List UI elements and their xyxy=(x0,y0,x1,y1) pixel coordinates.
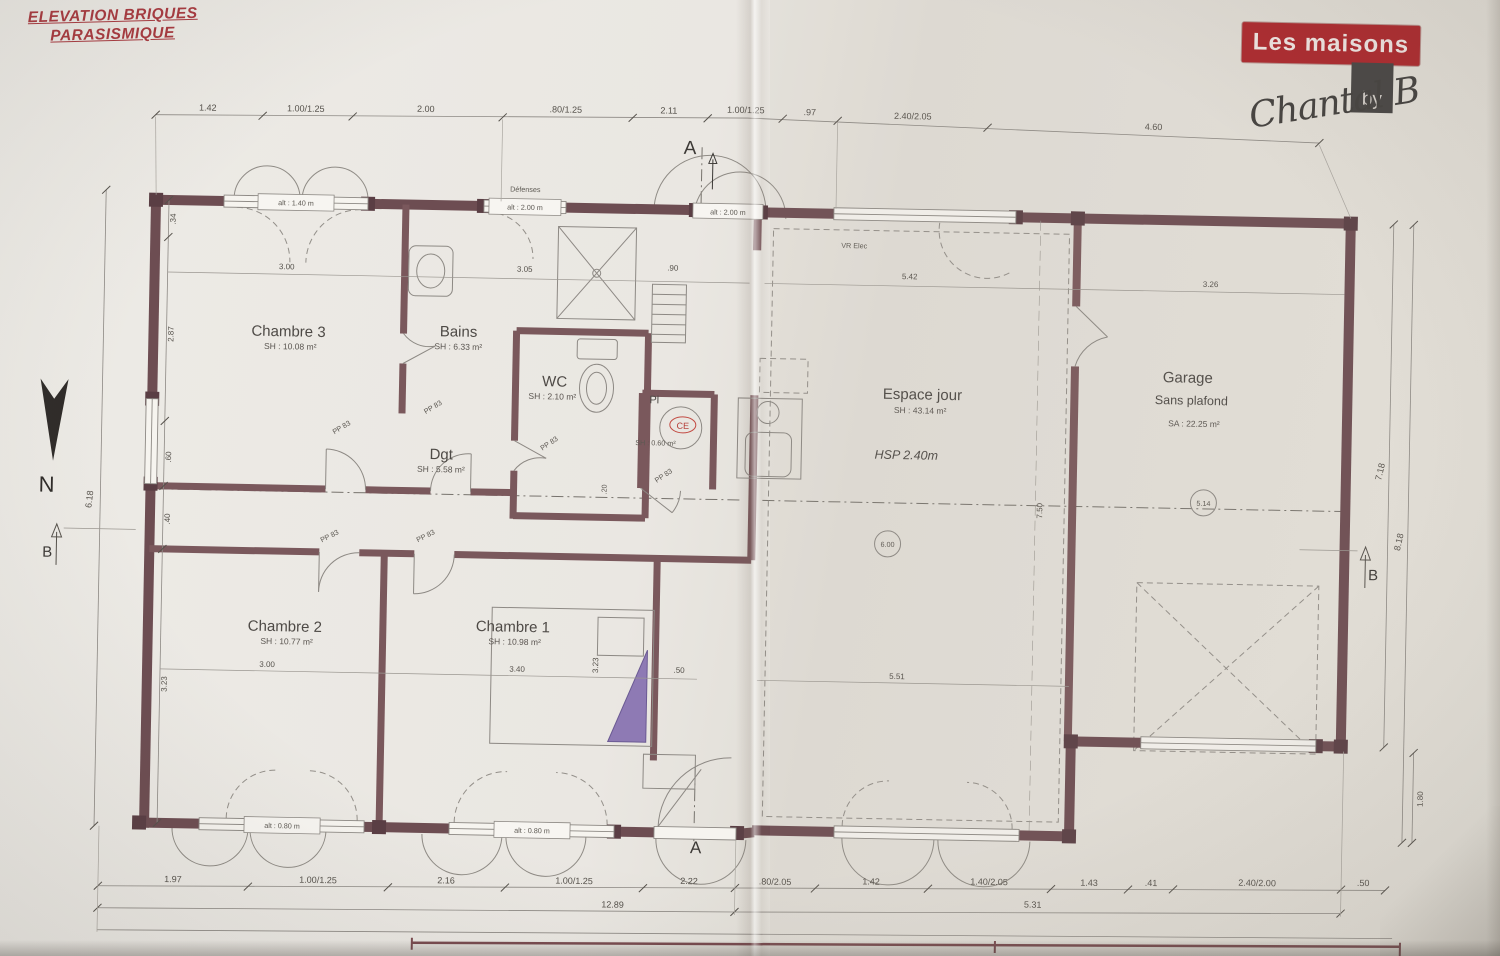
shower xyxy=(557,226,637,319)
door-size-labels: PP 83 PP 83 PP 83 PP 83 PP 83 PP 83 xyxy=(319,396,676,551)
dim: 6.18 xyxy=(83,490,95,509)
dim: 1.42 xyxy=(199,103,217,113)
room-bains-area: SH : 6.33 m² xyxy=(434,341,482,352)
dim: .60 xyxy=(164,451,173,463)
door-label: PP 83 xyxy=(422,398,443,416)
dim: .40 xyxy=(163,513,172,525)
fixtures xyxy=(399,224,806,791)
dim: 2.40/2.00 xyxy=(1238,878,1276,889)
dim: .20 xyxy=(599,484,608,494)
dim: 3.40 xyxy=(509,665,525,674)
orientation-markers: N A A B B xyxy=(32,126,1387,871)
dim: 2.11 xyxy=(660,105,677,115)
dim: 2.40/2.05 xyxy=(894,111,932,122)
door-label: PP 83 xyxy=(319,528,340,545)
north-label: N xyxy=(38,472,54,497)
elevation-note-line2: PARASISMIQUE xyxy=(50,23,198,46)
washbasin xyxy=(408,246,453,297)
section-b-left: B xyxy=(42,544,52,561)
scanned-floor-plan-photo: { "page": { "note_line1": "ELEVATION BRI… xyxy=(0,0,1500,956)
room-espace-jour-area: SH : 43.14 m² xyxy=(894,405,947,416)
kitchen-unit xyxy=(737,398,803,479)
dim: 2.87 xyxy=(166,326,175,342)
dim: 1.40/2.05 xyxy=(970,876,1008,887)
dim: 2.00 xyxy=(417,104,435,114)
defenses-label: Défenses xyxy=(510,185,541,195)
room-garage: Garage xyxy=(1163,369,1213,387)
toilet xyxy=(576,339,617,413)
dim: .90 xyxy=(667,264,679,273)
dim: 3.05 xyxy=(517,265,533,274)
window-alt-label: alt : 1.40 m xyxy=(278,198,314,208)
dim: .41 xyxy=(1145,878,1158,888)
dim: 5.51 xyxy=(889,672,905,681)
room-wc-area: SH : 2.10 m² xyxy=(528,391,576,402)
dim: 1.00/1.25 xyxy=(287,103,325,114)
dim: 2.16 xyxy=(437,875,455,885)
dim: 7.18 xyxy=(1373,462,1387,481)
room-garage-subtitle: Sans plafond xyxy=(1155,393,1228,408)
dim: .34 xyxy=(169,213,178,225)
window-alt-label: alt : 2.00 m xyxy=(710,207,746,217)
room-chambre3-area: SH : 10.08 m² xyxy=(264,341,317,352)
bubble-living-label: 6.00 xyxy=(880,540,894,549)
door-label: PP 83 xyxy=(331,418,352,436)
dim: 2.22 xyxy=(680,876,698,886)
dim-total: 12.89 xyxy=(601,899,624,909)
room-bains: Bains xyxy=(440,323,478,341)
room-dgt: Dgt xyxy=(429,446,453,463)
window-alt-label: alt : 0.80 m xyxy=(514,826,550,836)
structural-walls xyxy=(748,211,1078,741)
doors xyxy=(314,292,1108,835)
section-b-right: B xyxy=(1368,567,1378,584)
room-pl: Pl xyxy=(649,394,659,406)
dim: .80/1.25 xyxy=(549,104,582,115)
door-label: PP 83 xyxy=(415,527,436,544)
dim: 8.18 xyxy=(1392,532,1406,551)
dim: 5.42 xyxy=(902,272,918,281)
dim: 1.43 xyxy=(1080,878,1098,888)
room-pl-area: SH : 0.60 m² xyxy=(635,438,676,448)
dim: 3.26 xyxy=(1203,280,1219,289)
room-chambre1-area: SH : 10.98 m² xyxy=(488,636,541,647)
dim: .80/2.05 xyxy=(759,876,792,887)
room-dgt-area: SH : 5.58 m² xyxy=(417,464,465,475)
dim: 4.60 xyxy=(1145,122,1163,132)
north-arrow-icon xyxy=(39,379,69,462)
dim: 1.00/1.25 xyxy=(299,875,337,886)
brand-stamp: Les maisons by xyxy=(1242,22,1421,66)
section-a-bottom: A xyxy=(690,838,702,857)
windows xyxy=(138,194,1326,851)
room-chambre2: Chambre 2 xyxy=(248,618,323,636)
dim: 1.97 xyxy=(164,874,182,884)
room-garage-area: SA : 22.25 m² xyxy=(1168,418,1220,429)
door-label: PP 83 xyxy=(538,434,559,452)
door-label: PP 83 xyxy=(653,466,674,484)
floor-plan-drawing: alt : 1.40 m alt : 2.00 m Défenses alt :… xyxy=(0,0,1500,956)
brand-logo: Les maisons xyxy=(1242,22,1421,66)
dim: .50 xyxy=(673,666,685,675)
window-alt-label: alt : 2.00 m xyxy=(507,202,543,212)
room-espace-jour: Espace jour xyxy=(883,386,963,405)
dim: .97 xyxy=(803,107,816,117)
room-wc: WC xyxy=(542,373,567,390)
room-chambre2-area: SH : 10.77 m² xyxy=(260,636,313,647)
dim: 3.23 xyxy=(160,676,169,692)
room-espace-jour-hsp: HSP 2.40m xyxy=(874,448,938,463)
radiator xyxy=(651,284,686,343)
section-a-top: A xyxy=(684,138,697,159)
dim-total: 5.31 xyxy=(1024,900,1042,910)
reference-bubbles: 6.00 5.14 CE xyxy=(657,406,1218,563)
dim: 3.00 xyxy=(279,262,295,271)
lower-red-dimension-line xyxy=(412,924,1400,956)
dim: 3.00 xyxy=(259,660,275,669)
vr-elec-label: VR Elec xyxy=(841,241,868,251)
dim: 1.80 xyxy=(1416,791,1425,807)
room-chambre3: Chambre 3 xyxy=(251,323,326,341)
dim: 1.00/1.25 xyxy=(555,876,593,887)
ce-water-heater-label: CE xyxy=(676,421,689,431)
dim: 1.42 xyxy=(862,876,880,886)
dim: 7.50 xyxy=(1035,502,1044,518)
window-alt-label: alt : 0.80 m xyxy=(264,821,300,831)
room-chambre1: Chambre 1 xyxy=(476,618,551,636)
bubble-garage-label: 5.14 xyxy=(1196,499,1210,508)
dim: .50 xyxy=(1357,878,1370,888)
exterior-walls xyxy=(139,195,1356,851)
dim: 1.00/1.25 xyxy=(727,105,765,116)
elevation-note: ELEVATION BRIQUES PARASISMIQUE xyxy=(28,4,199,46)
dim: 3.23 xyxy=(591,657,600,673)
